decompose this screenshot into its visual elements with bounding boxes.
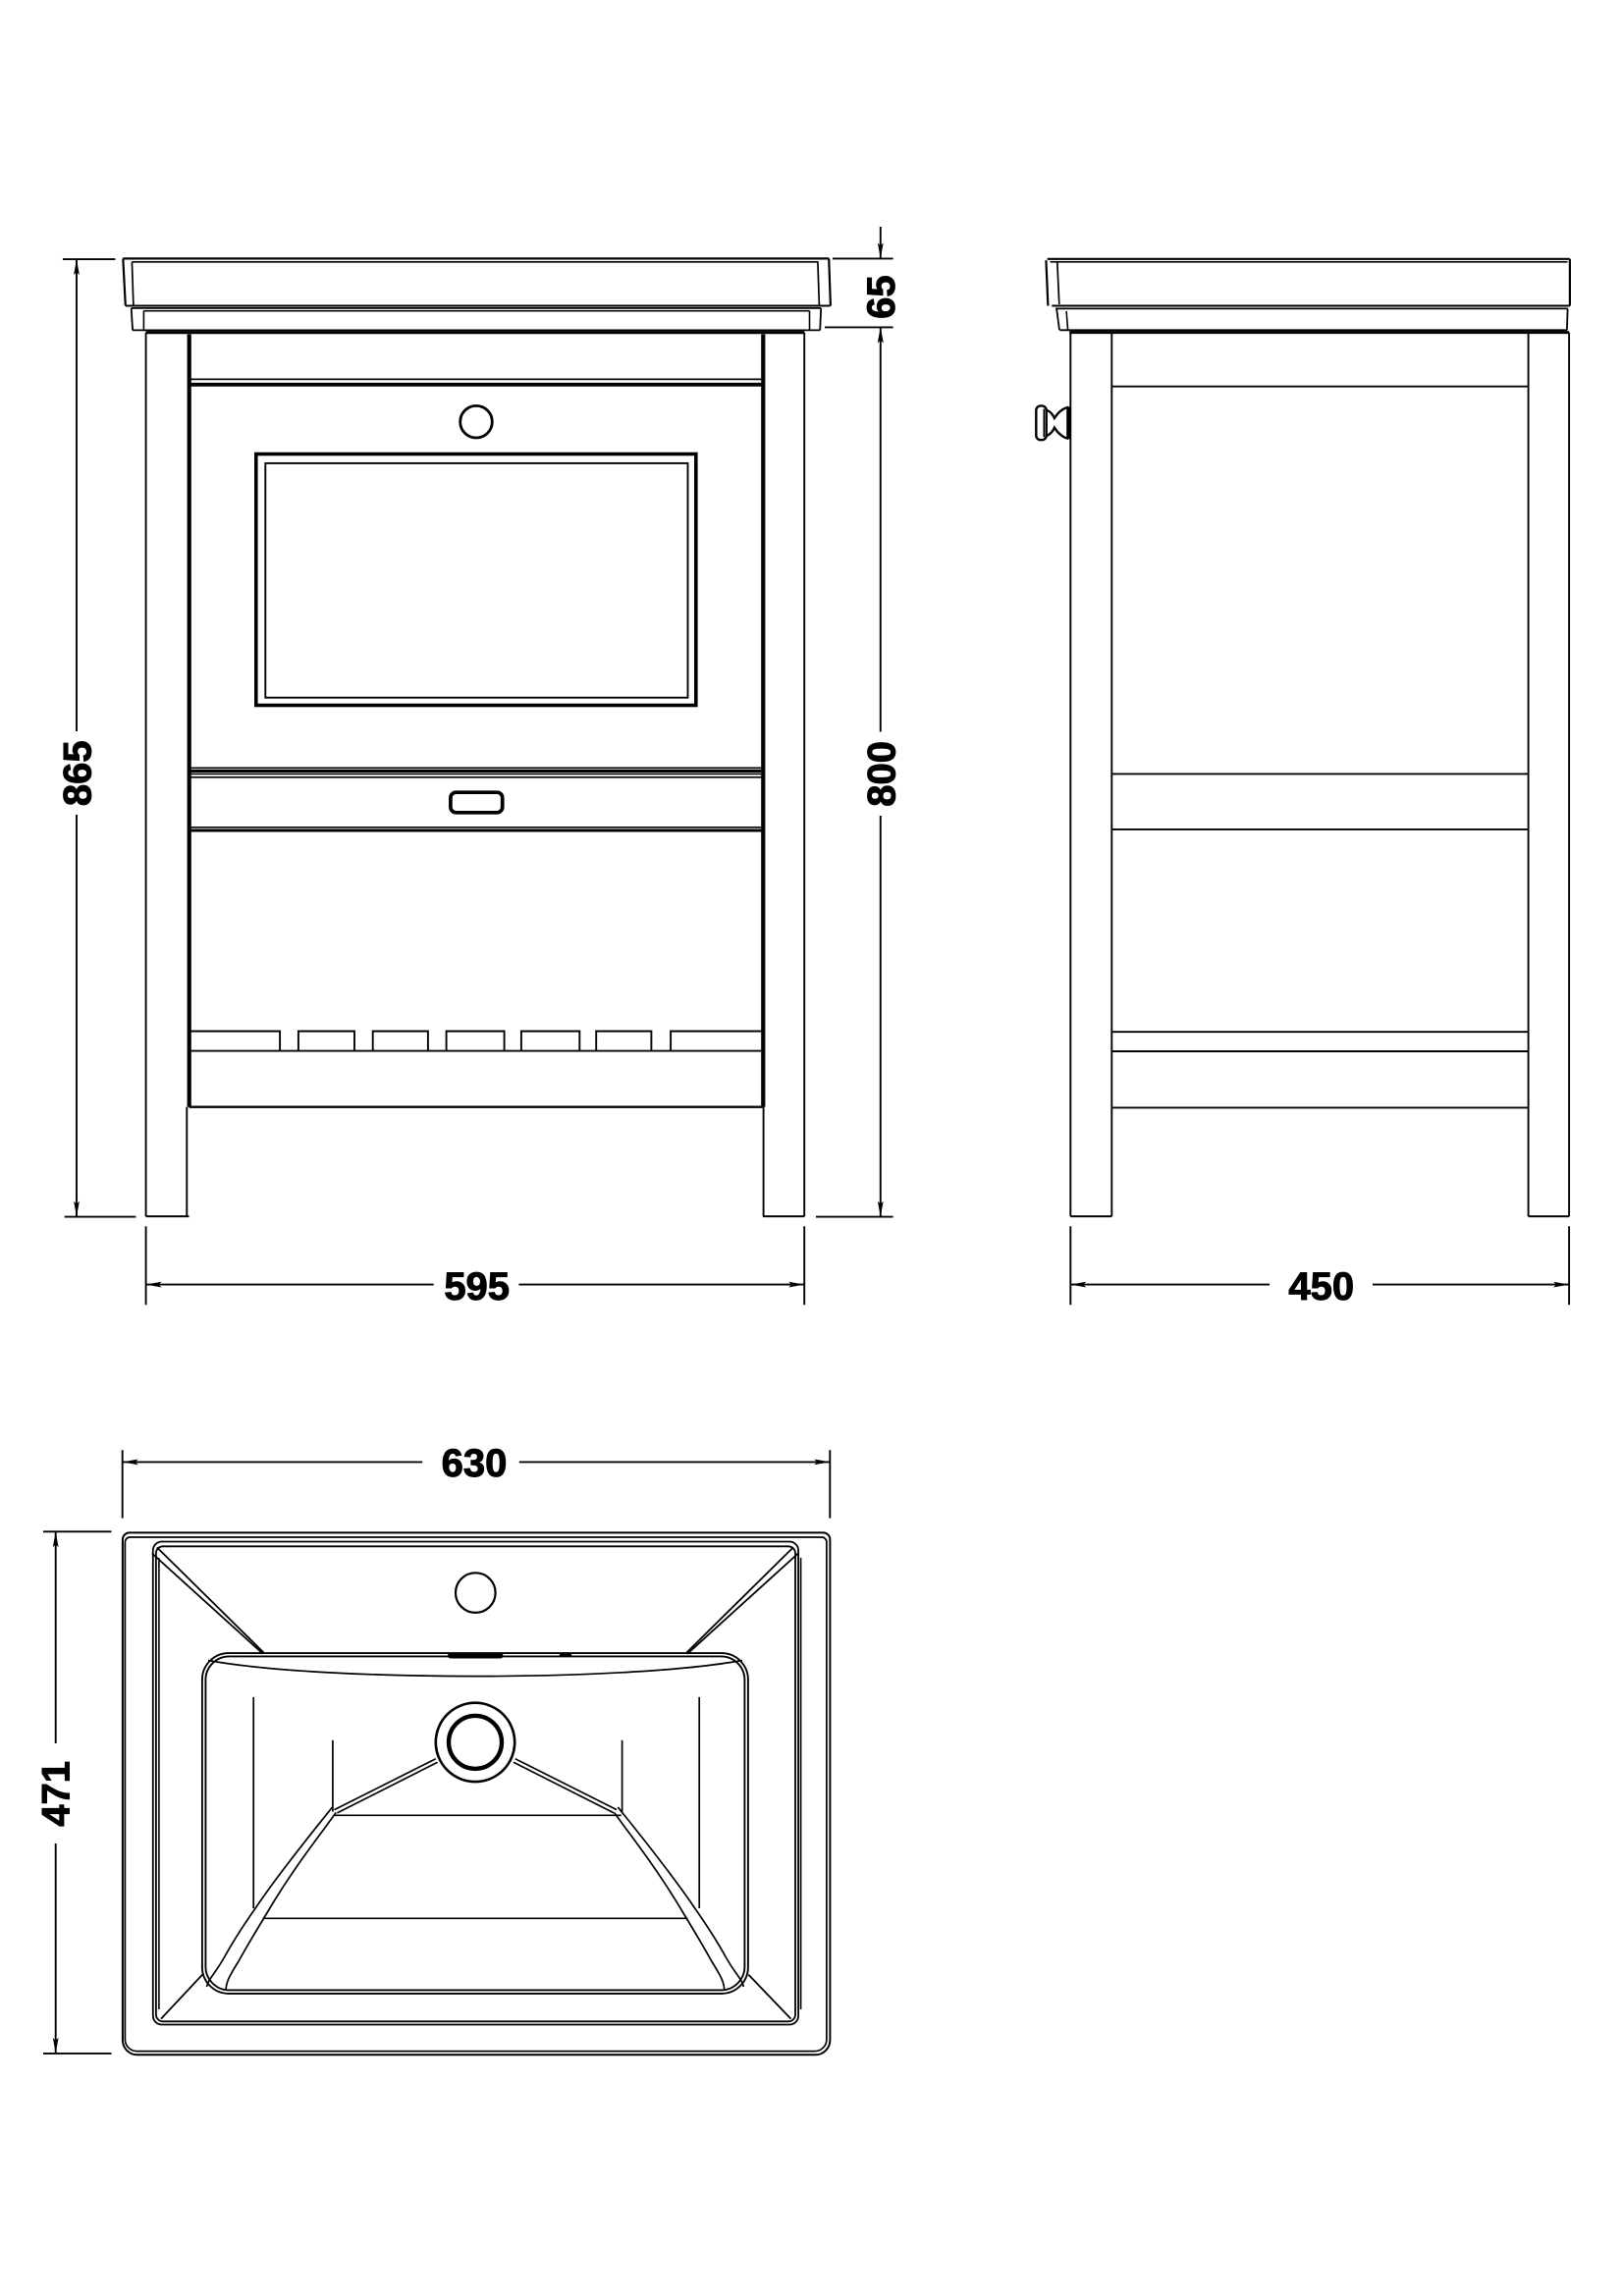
svg-text:865: 865 — [56, 740, 99, 806]
svg-text:630: 630 — [442, 1442, 508, 1485]
svg-text:65: 65 — [860, 275, 903, 319]
svg-text:595: 595 — [444, 1265, 510, 1308]
svg-text:471: 471 — [34, 1761, 78, 1827]
svg-text:450: 450 — [1288, 1265, 1354, 1308]
svg-text:800: 800 — [860, 741, 903, 807]
